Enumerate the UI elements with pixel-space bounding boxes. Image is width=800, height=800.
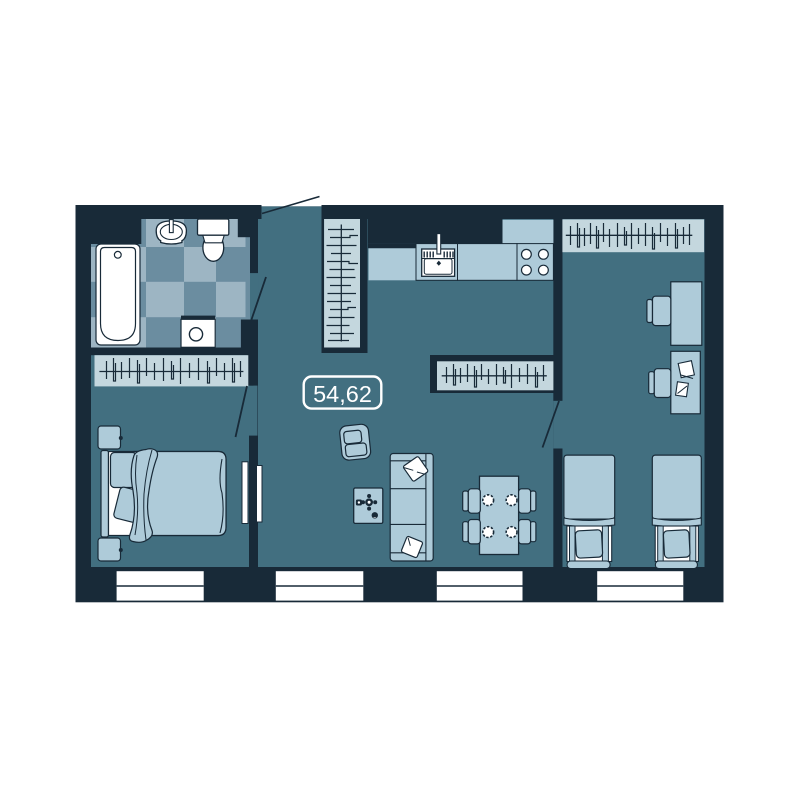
svg-text:54,62: 54,62 (313, 381, 372, 407)
